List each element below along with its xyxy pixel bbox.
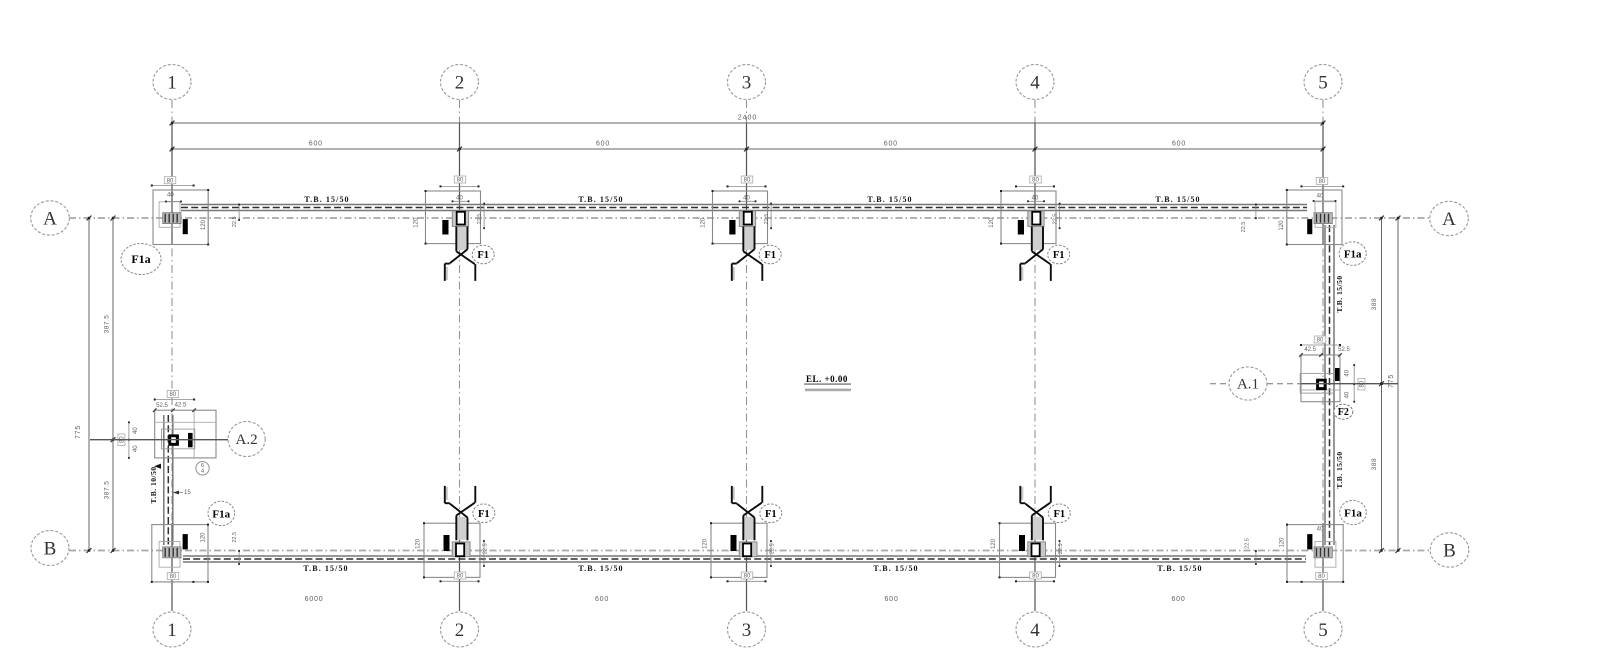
svg-text:4: 4 bbox=[1030, 620, 1040, 641]
svg-text:120: 120 bbox=[991, 538, 997, 549]
svg-text:120: 120 bbox=[701, 217, 707, 228]
svg-text:22.5: 22.5 bbox=[477, 214, 483, 225]
svg-text:T.B. 15/50: T.B. 15/50 bbox=[873, 564, 918, 573]
svg-text:F1: F1 bbox=[1053, 250, 1065, 261]
svg-text:80: 80 bbox=[167, 178, 174, 184]
svg-text:22.5: 22.5 bbox=[1241, 222, 1247, 233]
svg-text:3: 3 bbox=[742, 72, 752, 93]
svg-text:42.5: 42.5 bbox=[1304, 347, 1316, 353]
svg-text:T.B. 15/50: T.B. 15/50 bbox=[867, 195, 912, 204]
svg-text:22.5: 22.5 bbox=[1053, 214, 1059, 225]
svg-text:T.B. 15/50: T.B. 15/50 bbox=[303, 564, 348, 573]
svg-text:80: 80 bbox=[1319, 179, 1326, 185]
svg-text:T.B. 10/50: T.B. 10/50 bbox=[149, 466, 158, 503]
svg-text:120: 120 bbox=[416, 538, 422, 549]
svg-text:F2: F2 bbox=[1338, 407, 1349, 418]
svg-text:EL. +0.00: EL. +0.00 bbox=[806, 374, 848, 384]
svg-text:F1: F1 bbox=[478, 509, 490, 520]
svg-text:15: 15 bbox=[184, 490, 191, 496]
svg-text:B: B bbox=[44, 538, 57, 559]
svg-text:4: 4 bbox=[1030, 72, 1040, 93]
svg-text:600: 600 bbox=[595, 596, 609, 603]
svg-text:4: 4 bbox=[201, 469, 204, 475]
svg-text:80: 80 bbox=[170, 574, 177, 580]
svg-text:T.B. 15/50: T.B. 15/50 bbox=[1155, 195, 1200, 204]
svg-text:40: 40 bbox=[167, 193, 174, 199]
svg-text:52.5: 52.5 bbox=[156, 403, 168, 409]
svg-text:80: 80 bbox=[744, 574, 751, 580]
svg-text:120: 120 bbox=[201, 219, 207, 230]
svg-text:1: 1 bbox=[167, 72, 177, 93]
svg-text:120: 120 bbox=[1279, 220, 1285, 231]
svg-text:2: 2 bbox=[455, 72, 465, 93]
svg-text:120: 120 bbox=[989, 217, 995, 228]
svg-text:F1a: F1a bbox=[212, 508, 230, 520]
svg-text:80: 80 bbox=[1318, 574, 1325, 580]
svg-text:120: 120 bbox=[1280, 537, 1286, 548]
svg-text:387.5: 387.5 bbox=[104, 481, 111, 500]
svg-text:120: 120 bbox=[414, 217, 420, 228]
svg-text:80: 80 bbox=[1032, 178, 1039, 184]
svg-text:600: 600 bbox=[884, 141, 898, 148]
svg-text:T.B. 15/50: T.B. 15/50 bbox=[1157, 564, 1202, 573]
svg-text:40: 40 bbox=[1317, 194, 1324, 200]
svg-text:80: 80 bbox=[457, 574, 464, 580]
svg-text:F1a: F1a bbox=[131, 252, 150, 266]
svg-text:6000: 6000 bbox=[305, 596, 324, 603]
svg-text:40: 40 bbox=[456, 196, 463, 202]
svg-text:40: 40 bbox=[1345, 369, 1351, 376]
svg-text:A: A bbox=[1442, 209, 1456, 230]
svg-text:F1a: F1a bbox=[1344, 508, 1362, 520]
svg-text:2400: 2400 bbox=[738, 115, 758, 122]
svg-text:5: 5 bbox=[1318, 620, 1328, 641]
svg-text:1: 1 bbox=[167, 620, 177, 641]
svg-text:T.B. 15/50: T.B. 15/50 bbox=[1335, 451, 1344, 488]
svg-text:40: 40 bbox=[743, 196, 750, 202]
svg-text:22.5: 22.5 bbox=[770, 543, 776, 554]
svg-text:40: 40 bbox=[1345, 391, 1351, 398]
svg-text:80: 80 bbox=[457, 178, 464, 184]
svg-text:22.5: 22.5 bbox=[232, 532, 238, 543]
svg-text:40: 40 bbox=[1317, 527, 1324, 533]
svg-text:775: 775 bbox=[1388, 374, 1395, 388]
svg-text:600: 600 bbox=[309, 141, 323, 148]
svg-text:600: 600 bbox=[596, 141, 610, 148]
svg-text:600: 600 bbox=[1172, 141, 1186, 148]
svg-text:387.5: 387.5 bbox=[104, 315, 111, 334]
svg-text:A: A bbox=[43, 208, 57, 229]
svg-text:F1a: F1a bbox=[1344, 249, 1362, 261]
svg-text:40: 40 bbox=[133, 427, 139, 434]
svg-text:A.2: A.2 bbox=[236, 432, 258, 448]
svg-text:600: 600 bbox=[884, 596, 898, 603]
svg-text:22.5: 22.5 bbox=[1058, 543, 1064, 554]
svg-text:5: 5 bbox=[1318, 72, 1328, 93]
svg-text:T.B. 15/50: T.B. 15/50 bbox=[1335, 275, 1344, 312]
svg-text:22.5: 22.5 bbox=[232, 216, 238, 227]
svg-text:A.1: A.1 bbox=[1237, 377, 1259, 393]
svg-text:388: 388 bbox=[1371, 458, 1378, 470]
svg-text:T.B. 15/50: T.B. 15/50 bbox=[578, 564, 623, 573]
svg-text:T.B. 15/50: T.B. 15/50 bbox=[304, 195, 349, 204]
svg-text:22.5: 22.5 bbox=[483, 543, 489, 554]
svg-text:80: 80 bbox=[170, 392, 177, 398]
svg-text:22.5: 22.5 bbox=[1245, 538, 1251, 549]
svg-text:80: 80 bbox=[1032, 574, 1039, 580]
svg-text:F1: F1 bbox=[765, 509, 777, 520]
svg-text:600: 600 bbox=[1171, 596, 1185, 603]
svg-text:F1: F1 bbox=[477, 250, 489, 261]
svg-text:T.B. 15/50: T.B. 15/50 bbox=[578, 195, 623, 204]
svg-text:22.5: 22.5 bbox=[764, 214, 770, 225]
svg-text:388: 388 bbox=[1371, 298, 1378, 310]
svg-text:120: 120 bbox=[703, 538, 709, 549]
svg-text:F1: F1 bbox=[1053, 509, 1065, 520]
svg-text:2: 2 bbox=[455, 620, 465, 641]
svg-text:80: 80 bbox=[744, 178, 751, 184]
svg-text:B: B bbox=[1443, 540, 1456, 561]
svg-text:40: 40 bbox=[1032, 196, 1039, 202]
svg-text:120: 120 bbox=[200, 532, 206, 543]
svg-text:80: 80 bbox=[1317, 338, 1324, 344]
svg-text:F1: F1 bbox=[764, 250, 776, 261]
svg-text:775: 775 bbox=[75, 425, 82, 439]
svg-text:52.5: 52.5 bbox=[1338, 347, 1350, 353]
svg-text:40: 40 bbox=[133, 445, 139, 452]
svg-text:42.5: 42.5 bbox=[175, 403, 187, 409]
svg-text:3: 3 bbox=[742, 620, 752, 641]
